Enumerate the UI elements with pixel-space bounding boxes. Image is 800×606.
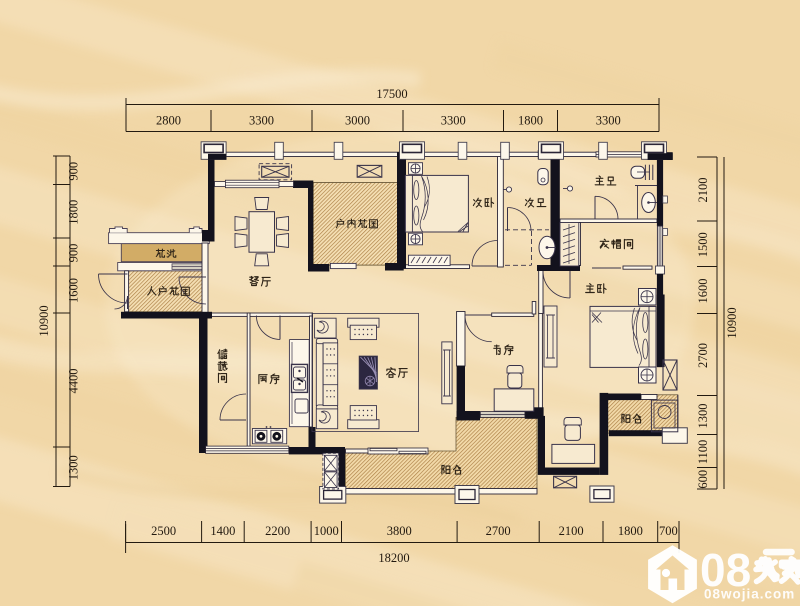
svg-text:900: 900 <box>67 162 81 181</box>
svg-text:1000: 1000 <box>314 524 339 538</box>
svg-text:1400: 1400 <box>210 524 235 538</box>
svg-text:1600: 1600 <box>696 279 710 304</box>
svg-text:600: 600 <box>696 470 710 489</box>
svg-text:2500: 2500 <box>151 524 176 538</box>
svg-text:3300: 3300 <box>441 114 466 128</box>
svg-text:1800: 1800 <box>67 200 81 225</box>
svg-text:3300: 3300 <box>596 114 621 128</box>
svg-text:1600: 1600 <box>67 278 81 303</box>
svg-text:3300: 3300 <box>249 114 274 128</box>
svg-text:1800: 1800 <box>518 114 543 128</box>
svg-text:17500: 17500 <box>376 87 407 101</box>
svg-text:10900: 10900 <box>37 305 51 336</box>
svg-text:2100: 2100 <box>696 178 710 203</box>
svg-text:1500: 1500 <box>696 232 710 257</box>
svg-text:2100: 2100 <box>559 524 584 538</box>
svg-text:1300: 1300 <box>67 455 81 480</box>
svg-text:2200: 2200 <box>265 524 290 538</box>
svg-text:1300: 1300 <box>696 404 710 429</box>
svg-text:2800: 2800 <box>156 114 181 128</box>
svg-text:900: 900 <box>67 244 81 263</box>
svg-text:2700: 2700 <box>486 524 511 538</box>
svg-text:10900: 10900 <box>725 307 739 338</box>
svg-text:4400: 4400 <box>67 369 81 394</box>
svg-text:2700: 2700 <box>696 343 710 368</box>
svg-text:18200: 18200 <box>378 551 409 565</box>
svg-text:3800: 3800 <box>387 524 412 538</box>
svg-text:08wojia.com: 08wojia.com <box>704 587 795 602</box>
svg-text:3000: 3000 <box>345 114 370 128</box>
svg-text:700: 700 <box>659 524 678 538</box>
svg-text:1100: 1100 <box>696 440 710 465</box>
svg-text:1800: 1800 <box>618 524 643 538</box>
